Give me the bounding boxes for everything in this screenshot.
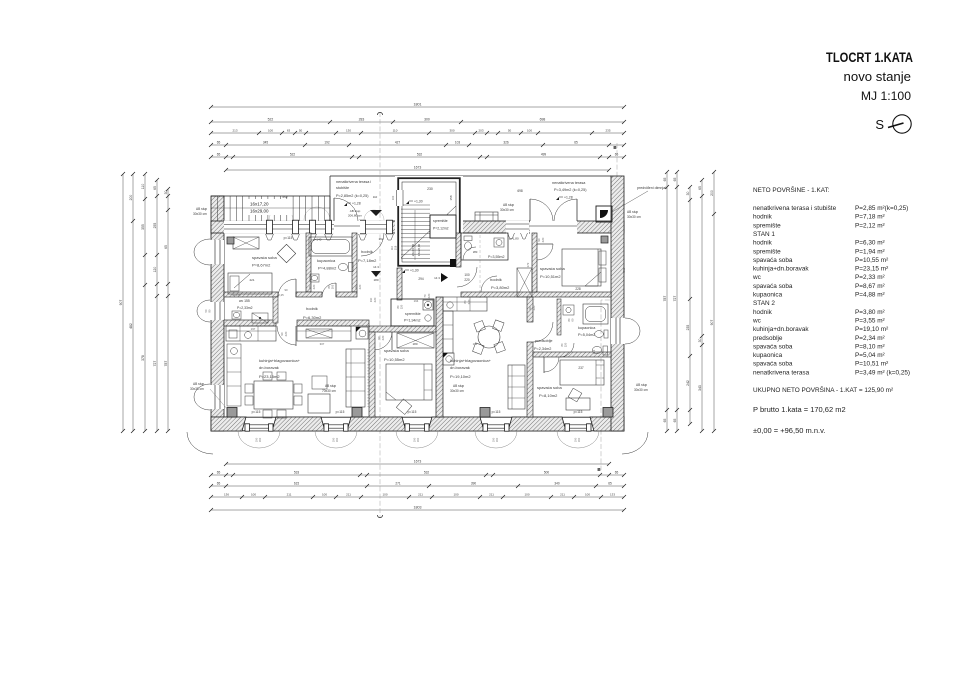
svg-text:P brutto 1.kata = 170,62 m2: P brutto 1.kata = 170,62 m2 — [753, 405, 846, 414]
svg-text:P=19,10 m²: P=19,10 m² — [855, 326, 888, 333]
svg-text:dn.boravak: dn.boravak — [450, 365, 470, 370]
svg-text:190: 190 — [574, 437, 578, 442]
svg-text:220: 220 — [467, 299, 471, 304]
svg-text:AB stup: AB stup — [196, 207, 207, 211]
svg-text:AB stup: AB stup — [350, 209, 361, 213]
svg-text:110: 110 — [393, 129, 398, 133]
svg-text:p=115: p=115 — [574, 410, 583, 414]
svg-text:100: 100 — [524, 493, 529, 497]
svg-text:spremište: spremište — [405, 312, 421, 316]
svg-text:novo stanje: novo stanje — [844, 69, 911, 84]
svg-text:UKUPNO NETO POVRŠINA - 1.KAT =: UKUPNO NETO POVRŠINA - 1.KAT = 125,90 m² — [753, 385, 893, 394]
svg-text:427: 427 — [395, 141, 401, 145]
svg-text:P=23,15 m²: P=23,15 m² — [855, 266, 888, 273]
svg-text:P=2,12 m²: P=2,12 m² — [855, 222, 885, 229]
svg-text:110: 110 — [141, 184, 145, 190]
svg-text:STAN 2: STAN 2 — [753, 300, 775, 307]
svg-text:907: 907 — [119, 300, 123, 306]
svg-text:30x30 cm: 30x30 cm — [450, 389, 464, 393]
svg-text:499: 499 — [541, 153, 547, 157]
svg-text:p=140: p=140 — [313, 238, 322, 242]
svg-text:220: 220 — [312, 284, 316, 289]
svg-text:50: 50 — [508, 129, 512, 133]
svg-text:65: 65 — [615, 153, 619, 157]
svg-text:p=115: p=115 — [284, 236, 293, 240]
svg-text:P=2,33m2: P=2,33m2 — [237, 306, 253, 310]
svg-text:63: 63 — [287, 129, 291, 133]
svg-text:stubište: stubište — [336, 186, 349, 190]
svg-text:p=1,80: p=1,80 — [509, 237, 519, 241]
svg-text:30: 30 — [164, 191, 168, 195]
svg-text:P=3,80m2: P=3,80m2 — [491, 285, 510, 290]
svg-text:30: 30 — [698, 339, 702, 343]
svg-text:160: 160 — [577, 437, 581, 442]
svg-text:spavaća soba: spavaća soba — [384, 348, 409, 353]
svg-text:AB stup: AB stup — [325, 384, 336, 388]
svg-text:220: 220 — [373, 297, 377, 302]
svg-text:532: 532 — [424, 471, 430, 475]
svg-text:wc: wc — [473, 250, 478, 254]
svg-text:±0,00 = +96,50 m.n.v.: ±0,00 = +96,50 m.n.v. — [753, 426, 825, 435]
svg-text:spavaća soba: spavaća soba — [537, 385, 562, 390]
svg-text:787: 787 — [663, 296, 667, 302]
svg-text:218: 218 — [622, 267, 626, 272]
svg-text:133: 133 — [610, 493, 615, 497]
svg-text:P=10,55 m²: P=10,55 m² — [855, 257, 888, 264]
svg-text:hodnik: hodnik — [361, 249, 373, 254]
svg-text:P=3,55m2: P=3,55m2 — [488, 255, 504, 259]
svg-text:nenatkrivena terasa: nenatkrivena terasa — [753, 369, 810, 376]
svg-text:522: 522 — [290, 153, 296, 157]
svg-text:nenatkrivena terasa i stubište: nenatkrivena terasa i stubište — [753, 205, 837, 212]
svg-text:65: 65 — [574, 141, 578, 145]
svg-text:20x16,50: 20x16,50 — [411, 244, 415, 257]
svg-text:65: 65 — [164, 245, 168, 249]
svg-text:1803: 1803 — [414, 506, 422, 510]
svg-text:242: 242 — [686, 380, 690, 386]
svg-text:AB stup: AB stup — [636, 383, 647, 387]
svg-text:378: 378 — [141, 355, 145, 361]
svg-text:90: 90 — [284, 288, 288, 292]
svg-text:P=6,30 m²: P=6,30 m² — [855, 240, 885, 247]
svg-text:220: 220 — [541, 237, 545, 242]
svg-text:30x38 cm: 30x38 cm — [190, 387, 204, 391]
svg-text:211: 211 — [560, 493, 565, 497]
svg-text:kupaonica: kupaonica — [578, 326, 596, 330]
svg-text:203: 203 — [478, 129, 483, 133]
svg-text:S: S — [875, 117, 884, 132]
svg-text:spavaća soba: spavaća soba — [252, 255, 277, 260]
svg-text:200: 200 — [129, 195, 133, 201]
svg-text:200: 200 — [710, 190, 714, 196]
svg-text:160: 160 — [335, 437, 339, 442]
svg-text:P=2,85m2 (k=0,25): P=2,85m2 (k=0,25) — [336, 194, 369, 198]
svg-text:wc 155: wc 155 — [239, 299, 250, 303]
svg-text:p=115: p=115 — [252, 410, 261, 414]
svg-text:NETO POVRŠINE - 1.KAT:: NETO POVRŠINE - 1.KAT: — [753, 185, 830, 194]
svg-text:P=19,10m2: P=19,10m2 — [450, 374, 471, 379]
svg-text:65: 65 — [673, 419, 677, 423]
svg-text:P=8,10 m²: P=8,10 m² — [855, 343, 885, 350]
svg-text:P=8,10m2: P=8,10m2 — [539, 393, 558, 398]
svg-text:787: 787 — [164, 361, 168, 367]
svg-text:532: 532 — [417, 153, 423, 157]
svg-text:522: 522 — [268, 118, 274, 122]
svg-text:211: 211 — [346, 493, 351, 497]
svg-text:30x30 cm: 30x30 cm — [634, 388, 648, 392]
svg-text:hodnik: hodnik — [490, 277, 502, 282]
svg-text:P=4,88 m²: P=4,88 m² — [855, 292, 885, 299]
svg-text:spavaća soba: spavaća soba — [753, 257, 793, 264]
svg-text:220: 220 — [564, 342, 568, 347]
svg-text:190: 190 — [413, 437, 417, 442]
svg-text:65: 65 — [698, 186, 702, 190]
svg-text:283: 283 — [359, 118, 365, 122]
svg-text:221: 221 — [249, 278, 254, 282]
svg-text:100: 100 — [268, 129, 273, 133]
svg-text:65: 65 — [217, 482, 221, 486]
svg-text:spavaća soba: spavaća soba — [753, 283, 793, 290]
svg-text:211: 211 — [287, 493, 292, 497]
svg-text:100: 100 — [382, 493, 387, 497]
svg-text:+1,28: +1,28 — [352, 202, 361, 206]
svg-text:190: 190 — [332, 437, 336, 442]
svg-text:wc: wc — [752, 317, 762, 324]
svg-text:AB stup: AB stup — [453, 384, 464, 388]
svg-text:kupaonica: kupaonica — [317, 258, 336, 263]
svg-text:P=6,30m2: P=6,30m2 — [303, 315, 322, 320]
svg-text:P=8,67 m²: P=8,67 m² — [855, 283, 885, 290]
svg-text:p=115: p=115 — [492, 410, 501, 414]
svg-text:predsoblje: predsoblje — [753, 335, 783, 342]
svg-text:P=8,67m2: P=8,67m2 — [252, 263, 271, 268]
svg-text:30x30 cm: 30x30 cm — [627, 215, 641, 219]
svg-text:wc: wc — [752, 274, 762, 281]
svg-text:500: 500 — [544, 471, 550, 475]
svg-text:1673: 1673 — [414, 460, 422, 464]
svg-text:nenatkrivena terasa i: nenatkrivena terasa i — [336, 180, 371, 184]
svg-text:160: 160 — [258, 437, 262, 442]
svg-text:spavaća soba: spavaća soba — [540, 266, 565, 271]
svg-text:255: 255 — [153, 223, 157, 229]
svg-text:192: 192 — [378, 237, 383, 241]
svg-text:spavaća soba: spavaća soba — [753, 361, 793, 368]
svg-text:P=2,34 m²: P=2,34 m² — [855, 335, 885, 342]
svg-text:220: 220 — [427, 293, 431, 298]
svg-text:136: 136 — [224, 493, 229, 497]
svg-text:AB stup: AB stup — [503, 203, 514, 207]
svg-text:164: 164 — [414, 299, 419, 303]
svg-text:103: 103 — [455, 141, 461, 145]
svg-text:hodnik: hodnik — [753, 214, 773, 221]
svg-text:172: 172 — [526, 262, 530, 267]
svg-text:180: 180 — [373, 278, 378, 282]
svg-text:698: 698 — [540, 118, 546, 122]
svg-text:+1,30: +1,30 — [410, 269, 419, 273]
svg-text:300: 300 — [449, 129, 454, 133]
svg-text:16x29,00: 16x29,00 — [250, 209, 269, 214]
svg-text:205: 205 — [331, 284, 335, 289]
svg-text:kupaonica: kupaonica — [753, 292, 783, 299]
svg-text:65: 65 — [217, 153, 221, 157]
svg-text:907: 907 — [710, 320, 714, 326]
svg-text:110: 110 — [390, 245, 394, 250]
svg-text:482: 482 — [129, 323, 133, 329]
svg-text:14 3: 14 3 — [373, 265, 379, 269]
svg-text:2,25: 2,25 — [278, 293, 284, 297]
svg-text:180: 180 — [412, 342, 417, 346]
svg-text:P=5,04m2: P=5,04m2 — [578, 333, 595, 337]
svg-text:160: 160 — [495, 437, 499, 442]
svg-text:197: 197 — [251, 327, 256, 331]
svg-text:kupaonica: kupaonica — [753, 352, 783, 359]
svg-text:AB stup: AB stup — [193, 382, 204, 386]
svg-text:spremište: spremište — [753, 248, 781, 255]
svg-text:727: 727 — [153, 361, 157, 367]
svg-text:50: 50 — [299, 129, 303, 133]
svg-text:533: 533 — [294, 471, 300, 475]
svg-text:30x30 cm: 30x30 cm — [500, 208, 514, 212]
svg-text:300: 300 — [424, 118, 430, 122]
svg-text:190: 190 — [492, 437, 496, 442]
svg-text:AB stup: AB stup — [627, 210, 638, 214]
svg-text:220: 220 — [400, 304, 404, 309]
svg-text:P=10,55m2: P=10,55m2 — [384, 357, 405, 362]
svg-text:predviđeni dimnjak: predviđeni dimnjak — [637, 186, 667, 190]
svg-text:100: 100 — [391, 195, 395, 200]
svg-text:ne 155: ne 155 — [232, 293, 241, 297]
svg-text:P=1,94 m²: P=1,94 m² — [855, 248, 885, 255]
svg-text:kuhinja+dn.boravak: kuhinja+dn.boravak — [753, 266, 809, 273]
svg-text:220: 220 — [532, 305, 536, 310]
svg-text:70x30 cm: 70x30 cm — [322, 389, 336, 393]
svg-text:345: 345 — [263, 141, 269, 145]
svg-text:65: 65 — [615, 471, 619, 475]
svg-text:spremište: spremište — [433, 219, 448, 223]
svg-text:p=115: p=115 — [336, 410, 345, 414]
svg-text:MJ 1:100: MJ 1:100 — [861, 89, 911, 103]
svg-text:P=2,85 m²(k=0,25): P=2,85 m²(k=0,25) — [855, 205, 908, 212]
svg-text:390: 390 — [471, 482, 477, 486]
svg-text:237: 237 — [578, 366, 584, 370]
svg-text:340: 340 — [554, 482, 560, 486]
svg-text:220: 220 — [358, 284, 362, 289]
svg-text:110: 110 — [373, 195, 378, 199]
svg-text:326: 326 — [503, 141, 509, 145]
svg-text:65: 65 — [673, 178, 677, 182]
svg-text:dn.boravak: dn.boravak — [259, 365, 279, 370]
svg-text:STAN 1: STAN 1 — [753, 231, 775, 238]
svg-text:hodnik: hodnik — [753, 240, 773, 247]
svg-text:P=7,18m2: P=7,18m2 — [358, 258, 377, 263]
svg-text:hodnik: hodnik — [753, 309, 773, 316]
svg-text:120: 120 — [153, 267, 157, 273]
svg-text:30: 30 — [686, 192, 690, 196]
svg-text:294: 294 — [418, 277, 424, 281]
svg-text:160: 160 — [416, 437, 420, 442]
svg-text:230: 230 — [427, 187, 433, 191]
svg-text:65: 65 — [663, 419, 667, 423]
svg-text:predsoblje: predsoblje — [535, 339, 553, 343]
svg-text:652: 652 — [282, 195, 287, 199]
svg-text:161: 161 — [592, 349, 596, 354]
svg-text:P=3,49m2 (k=0,25): P=3,49m2 (k=0,25) — [554, 188, 587, 192]
svg-text:P=4,88m2: P=4,88m2 — [318, 266, 337, 271]
svg-text:220: 220 — [464, 278, 470, 282]
svg-text:130: 130 — [346, 129, 351, 133]
svg-text:kuhinja+dn.boravak: kuhinja+dn.boravak — [753, 326, 809, 333]
svg-text:hodnik: hodnik — [306, 306, 318, 311]
svg-text:14 3: 14 3 — [434, 276, 440, 280]
svg-text:235: 235 — [605, 129, 610, 133]
svg-text:228: 228 — [575, 287, 581, 291]
svg-text:65: 65 — [217, 471, 221, 475]
svg-text:1801: 1801 — [414, 103, 422, 107]
svg-text:100: 100 — [322, 493, 327, 497]
svg-text:+1,28: +1,28 — [564, 196, 573, 200]
svg-text:213: 213 — [232, 129, 237, 133]
svg-text:65: 65 — [608, 482, 612, 486]
svg-text:235: 235 — [686, 325, 690, 331]
svg-text:100: 100 — [464, 273, 470, 277]
svg-text:218: 218 — [394, 245, 398, 250]
svg-text:307: 307 — [320, 342, 325, 346]
svg-text:220: 220 — [284, 331, 288, 336]
svg-text:P=10,51m2: P=10,51m2 — [540, 274, 561, 279]
svg-text:164: 164 — [473, 342, 478, 346]
svg-text:30x30 cm: 30x30 cm — [193, 212, 207, 216]
svg-text:P=5,04 m²: P=5,04 m² — [855, 352, 885, 359]
svg-text:+1,30: +1,30 — [414, 200, 423, 204]
svg-text:P=2,34m2: P=2,34m2 — [534, 347, 551, 351]
svg-text:P=1,94m2: P=1,94m2 — [404, 319, 420, 323]
svg-text:spavaća soba: spavaća soba — [753, 343, 793, 350]
svg-text:nenatkrivena terasa: nenatkrivena terasa — [552, 181, 586, 185]
svg-text:615: 615 — [294, 482, 300, 486]
svg-text:100: 100 — [527, 129, 532, 133]
svg-text:P=2,12m2: P=2,12m2 — [433, 227, 449, 231]
svg-text:P=2,33 m²: P=2,33 m² — [855, 274, 885, 281]
svg-text:16x17,20: 16x17,20 — [250, 202, 269, 207]
svg-text:211: 211 — [489, 493, 494, 497]
svg-text:190: 190 — [255, 437, 259, 442]
svg-text:211: 211 — [418, 493, 423, 497]
svg-text:100: 100 — [251, 493, 256, 497]
svg-text:192: 192 — [324, 141, 330, 145]
svg-text:1673: 1673 — [414, 166, 422, 170]
svg-text:18x28,00: 18x28,00 — [417, 244, 421, 257]
svg-text:P=3,55 m²: P=3,55 m² — [855, 317, 885, 324]
svg-text:65: 65 — [153, 186, 157, 190]
svg-text:271: 271 — [395, 482, 401, 486]
svg-text:spremište: spremište — [753, 222, 781, 229]
svg-text:kuhinja+blagovaonica+: kuhinja+blagovaonica+ — [259, 358, 301, 363]
svg-text:P=7,18 m²: P=7,18 m² — [855, 214, 885, 221]
svg-text:100: 100 — [585, 493, 590, 497]
svg-text:355: 355 — [141, 224, 145, 230]
svg-text:P=3,49 m² (k=0,25): P=3,49 m² (k=0,25) — [855, 369, 910, 376]
svg-text:727: 727 — [673, 296, 677, 302]
svg-text:kuhinja+blagovaonica+: kuhinja+blagovaonica+ — [450, 358, 492, 363]
svg-text:P=10,51 m²: P=10,51 m² — [855, 361, 888, 368]
svg-text:206,80 cm: 206,80 cm — [348, 214, 363, 218]
svg-text:158: 158 — [449, 195, 453, 200]
svg-text:65: 65 — [663, 178, 667, 182]
svg-text:65: 65 — [217, 141, 221, 145]
svg-text:100: 100 — [453, 493, 458, 497]
svg-text:TLOCRT 1.KATA: TLOCRT 1.KATA — [826, 50, 913, 66]
svg-text:343: 343 — [698, 385, 702, 391]
svg-text:p=115: p=115 — [408, 410, 417, 414]
svg-text:220: 220 — [381, 335, 385, 340]
svg-text:P=3,80 m²: P=3,80 m² — [855, 309, 885, 316]
svg-text:698: 698 — [517, 189, 523, 193]
